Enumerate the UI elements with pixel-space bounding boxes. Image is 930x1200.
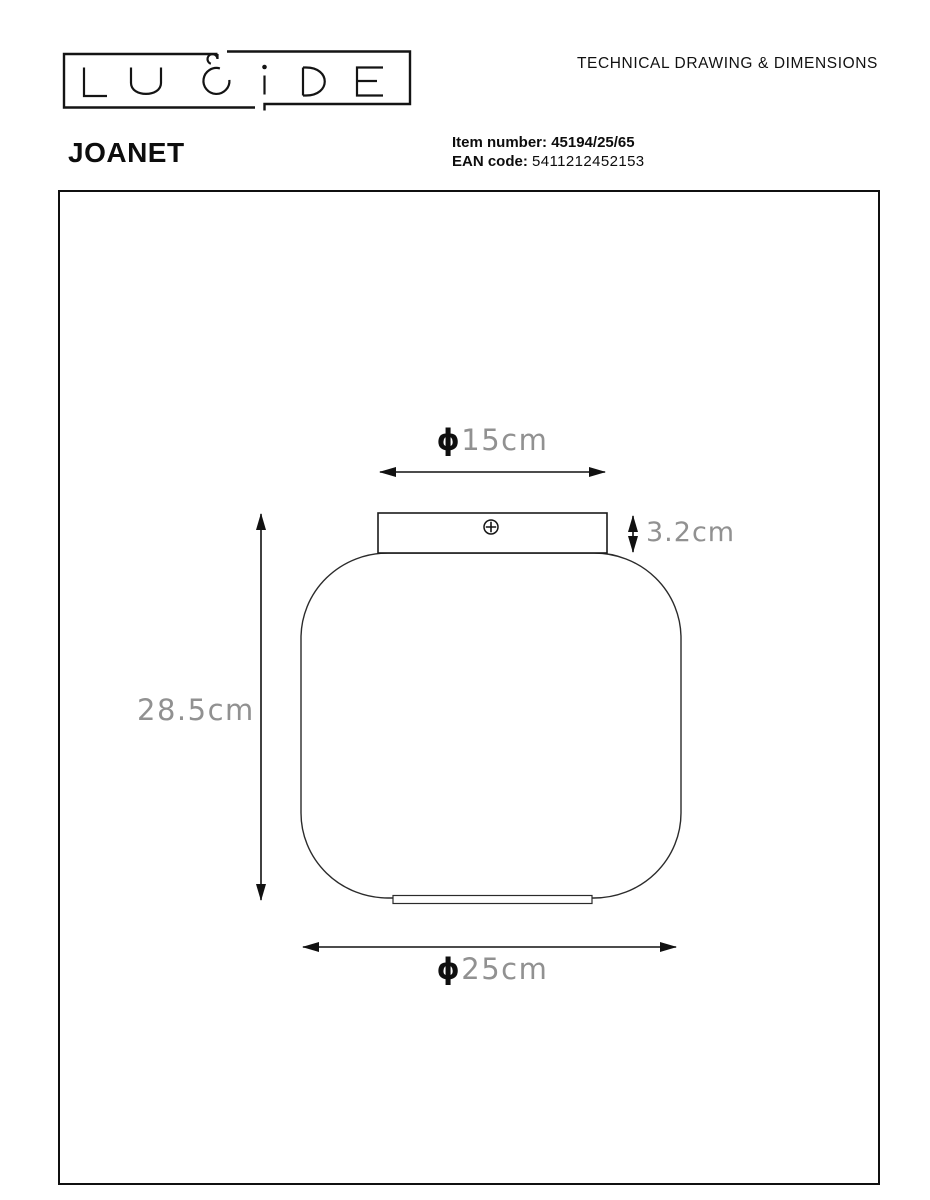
logo-pendant-cord (208, 54, 218, 64)
dim-label-top-diameter: ϕ15cm (378, 423, 607, 457)
diameter-symbol: ϕ (437, 952, 462, 986)
logo-letter-d (303, 68, 325, 96)
dim-label-total-height: 28.5cm (137, 693, 255, 727)
document-title: TECHNICAL DRAWING & DIMENSIONS (577, 55, 878, 73)
dim-value: 15cm (461, 423, 548, 457)
screw-icon (484, 520, 498, 534)
dim-label-bottom-diameter: ϕ25cm (375, 952, 610, 986)
lamp-technical-drawing (58, 190, 880, 1185)
logo-letter-l (84, 68, 107, 97)
logo-letter-i-dot (262, 65, 267, 70)
logo-box-left (64, 54, 255, 108)
logo-text: LUCIDE (0, 0, 1, 1)
item-number-row: Item number: 45194/25/65 (452, 133, 645, 152)
lucide-logo (60, 40, 420, 120)
item-number-label: Item number: (452, 134, 547, 151)
dim-value: 25cm (461, 952, 548, 986)
lamp-shade-outline (301, 553, 681, 898)
diameter-symbol: ϕ (437, 423, 462, 457)
ean-code-row: EAN code: 5411212452153 (452, 152, 645, 171)
ean-code-label: EAN code: (452, 153, 528, 170)
ean-code-value: 5411212452153 (532, 153, 645, 170)
technical-drawing-page: LUCIDE TECHNICAL DRAWING & DIMENSIONS JO… (0, 0, 930, 1200)
product-name: JOANET (68, 137, 185, 169)
lamp-base-ring (393, 896, 592, 904)
product-codes: Item number: 45194/25/65 EAN code: 54112… (452, 133, 645, 171)
logo-letter-c (203, 68, 229, 94)
ceiling-mount-plate (378, 513, 607, 553)
item-number-value: 45194/25/65 (551, 134, 634, 151)
dim-value: 28.5cm (137, 693, 255, 727)
logo-letter-u (131, 68, 161, 94)
dim-value: 3.2cm (646, 517, 735, 548)
logo-box-right (227, 52, 410, 111)
dim-label-plate-height: 3.2cm (646, 517, 735, 548)
logo-letter-e (357, 68, 383, 96)
